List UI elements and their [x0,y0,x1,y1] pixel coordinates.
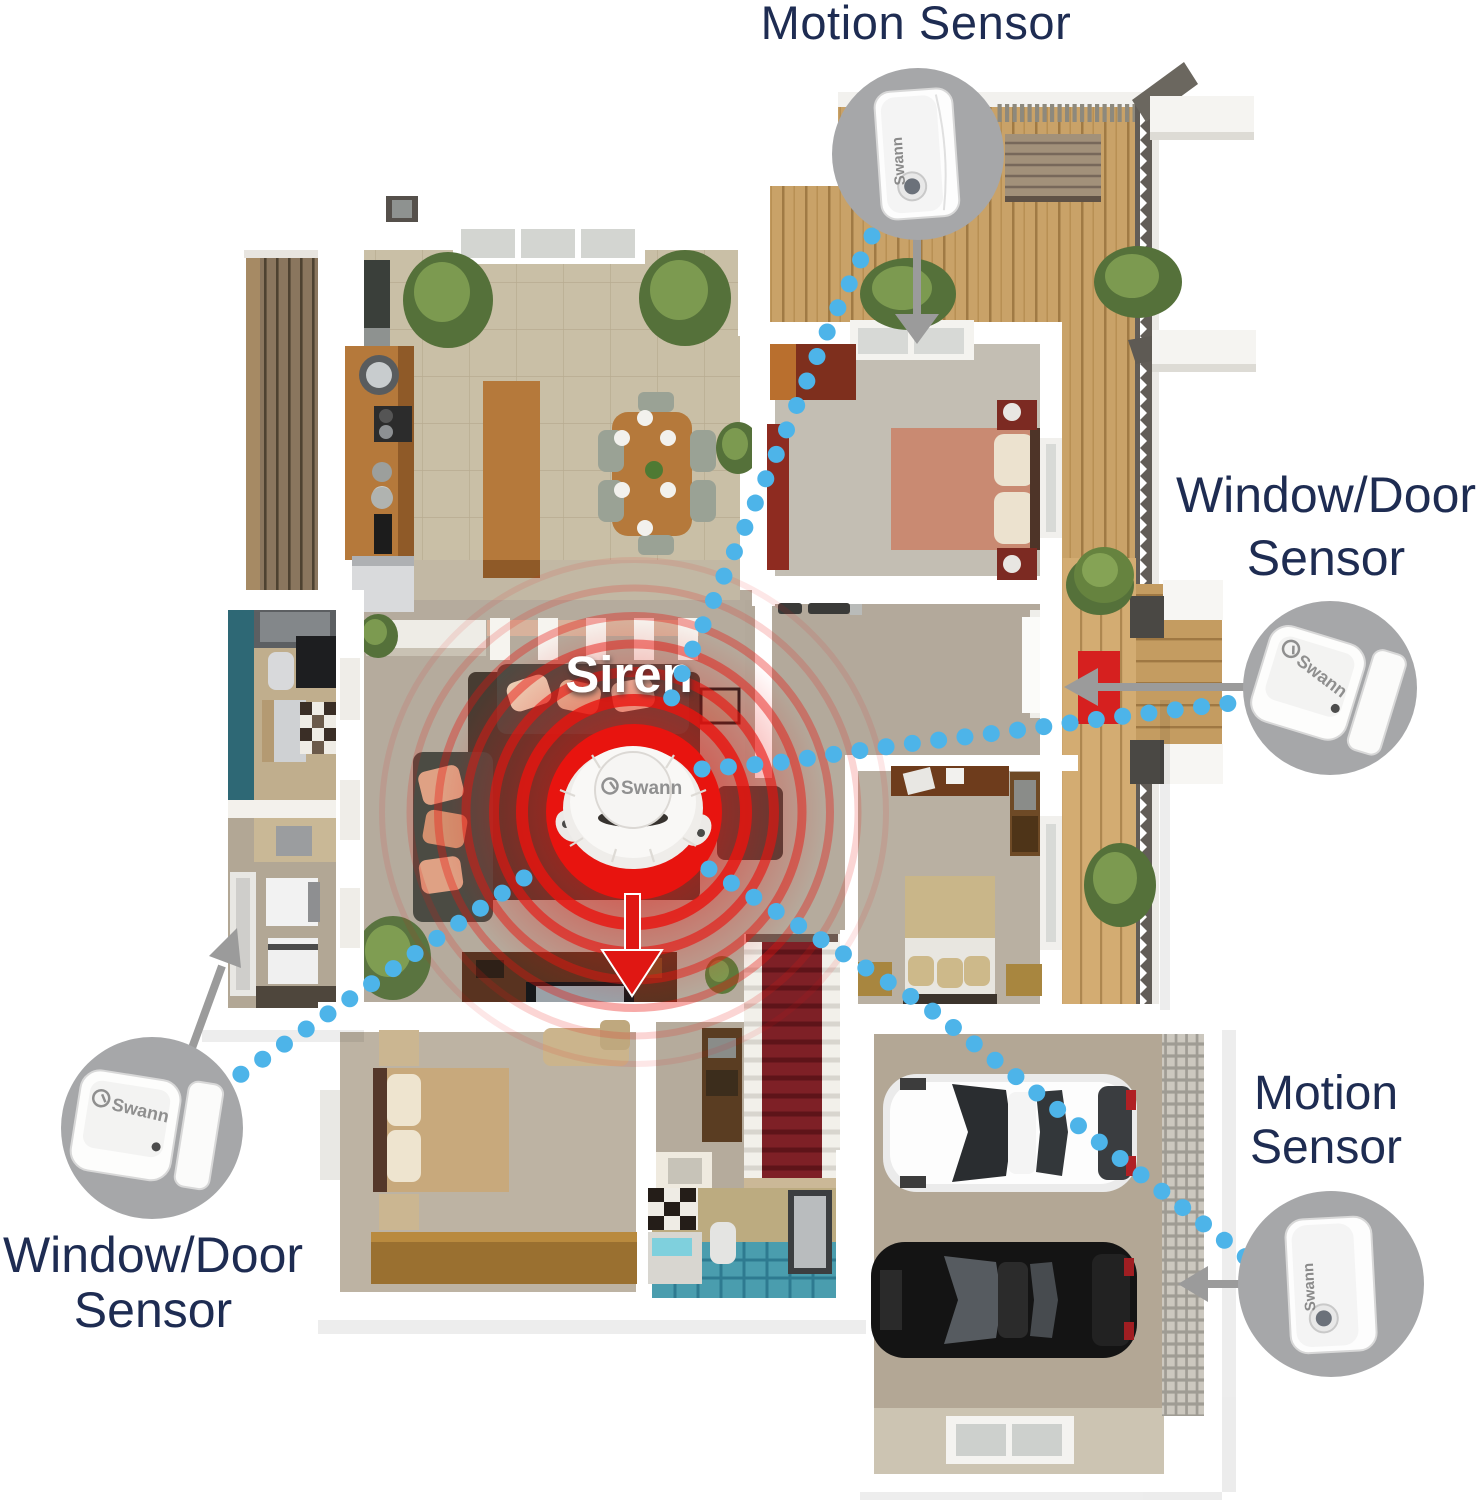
svg-text:Window/Door: Window/Door [1176,467,1476,523]
svg-text:Sensor: Sensor [74,1282,232,1338]
svg-text:Swann: Swann [889,137,909,186]
svg-text:Sensor: Sensor [1247,530,1405,586]
svg-text:Swann: Swann [621,778,682,799]
svg-text:Motion: Motion [1254,1067,1398,1120]
svg-text:Motion Sensor: Motion Sensor [761,0,1072,49]
svg-text:Sensor: Sensor [1250,1121,1402,1174]
svg-text:Window/Door: Window/Door [3,1227,303,1283]
svg-text:Swann: Swann [1300,1262,1320,1311]
